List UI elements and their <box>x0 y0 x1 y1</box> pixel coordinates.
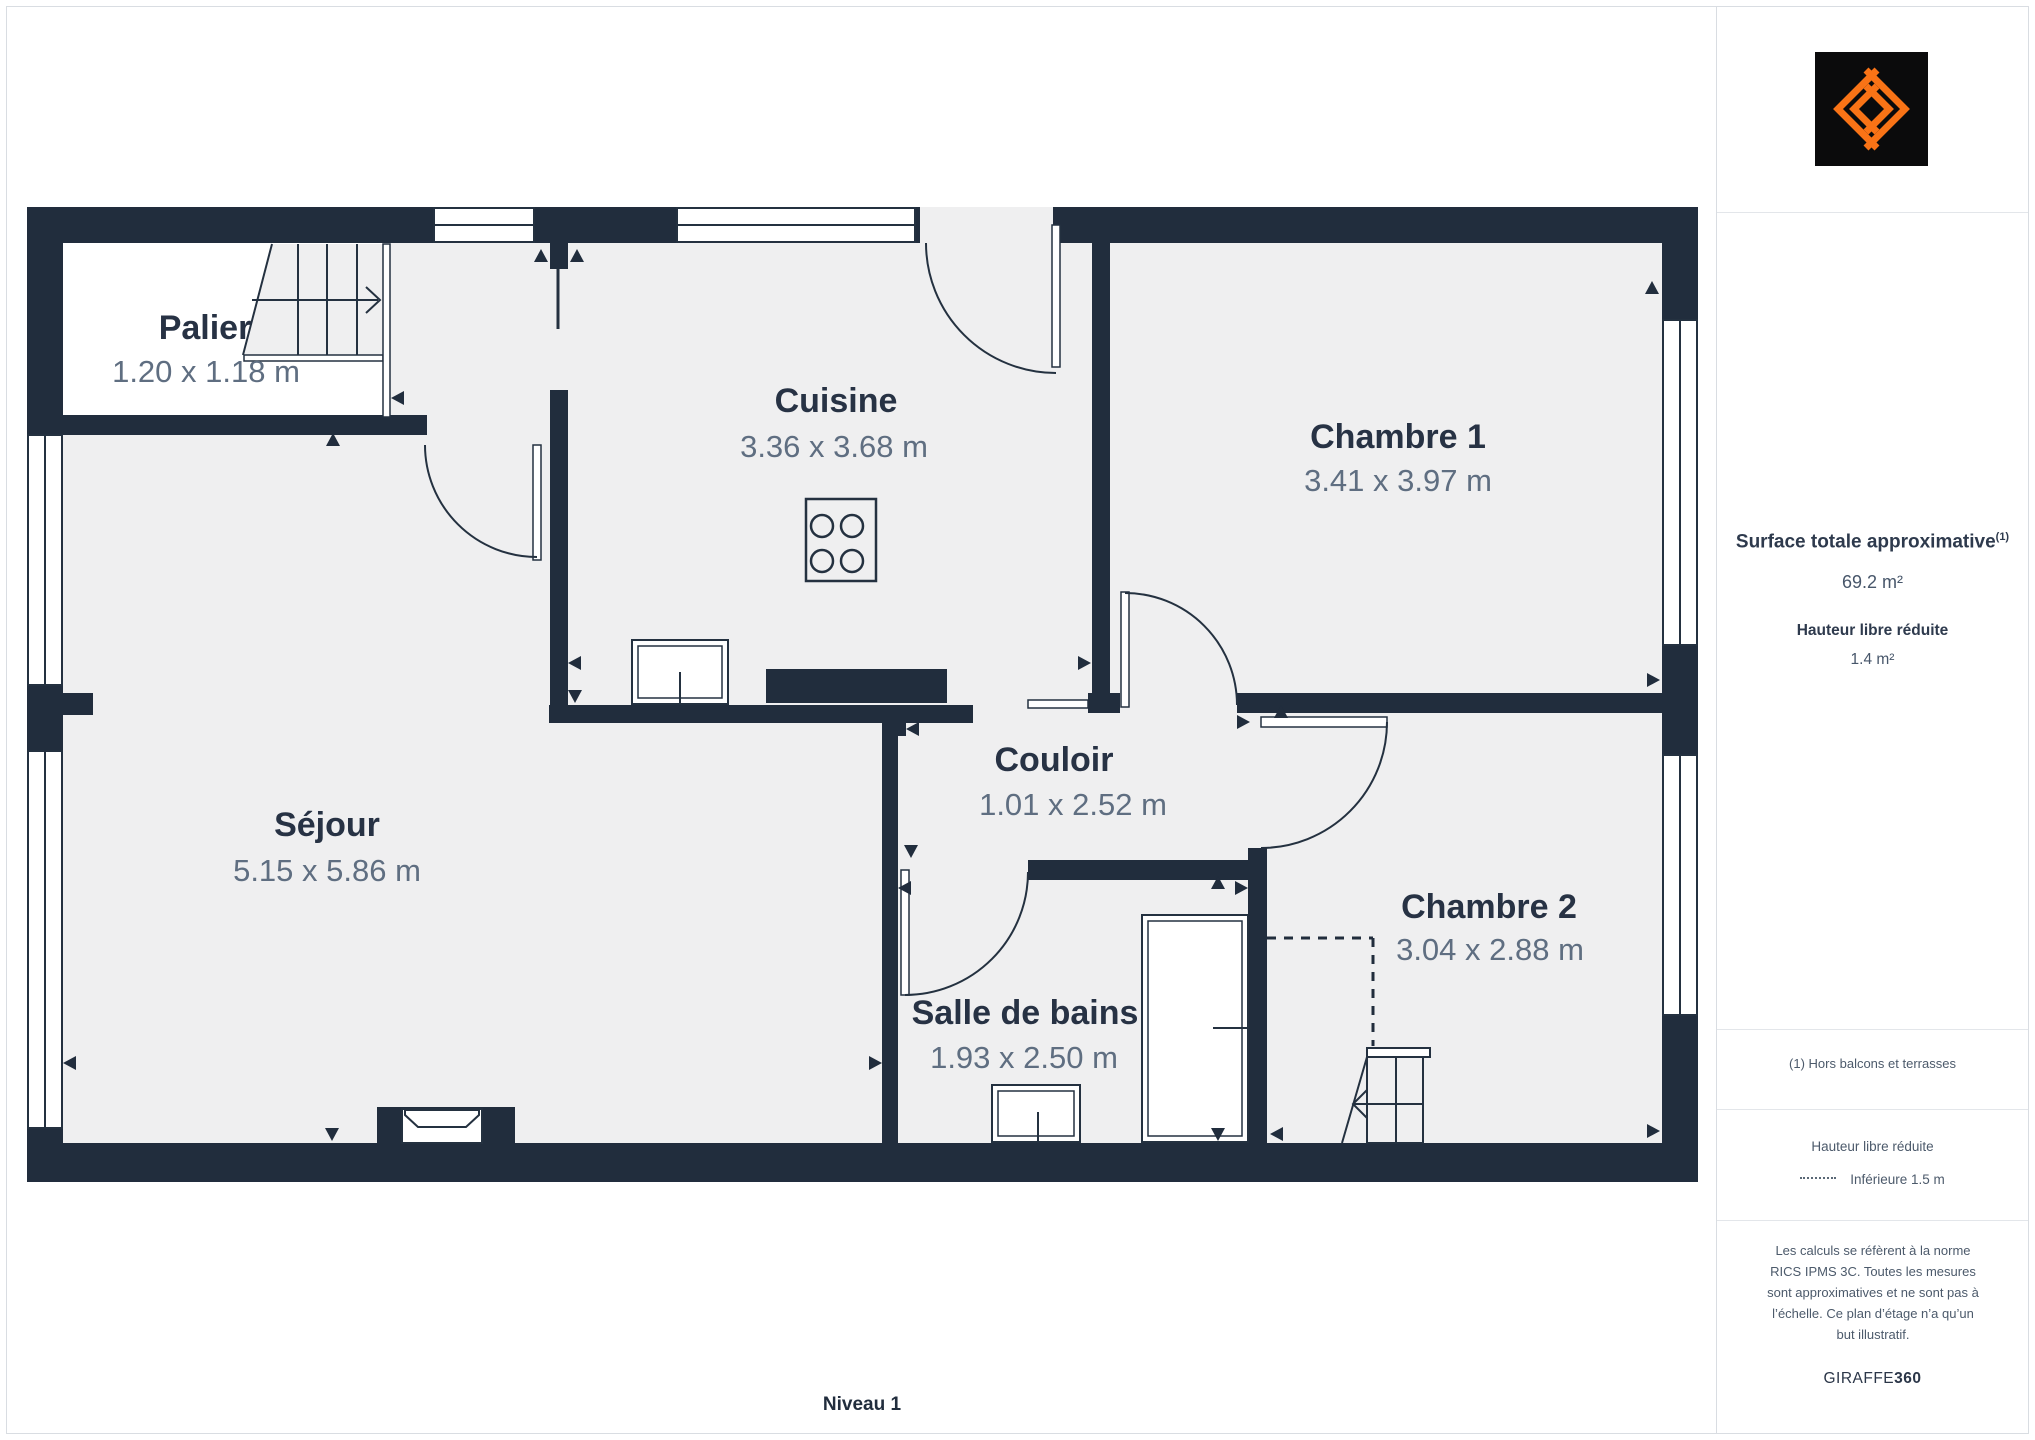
sidebar-section-divider <box>1717 1220 2029 1221</box>
disclaimer-text: Les calculs se réfèrent à la norme RICS … <box>1762 1240 1984 1345</box>
reduced-height-value: 1.4 m² <box>1717 651 2028 669</box>
brand-wordmark: GIRAFFE360 <box>1717 1370 2028 1388</box>
window-icon <box>1663 320 1697 645</box>
sink-icon <box>632 640 728 704</box>
room-dims: 3.41 x 3.97 m <box>1304 463 1492 498</box>
surface-total-superscript: (1) <box>1996 531 2009 543</box>
room-name: Séjour <box>274 806 380 844</box>
window-icon <box>677 208 915 242</box>
footnote: (1) Hors balcons et terrasses <box>1717 1056 2028 1071</box>
entry-niche-icon <box>402 1109 482 1143</box>
reduced-height-title: Hauteur libre réduite <box>1717 622 2028 640</box>
room-dims: 1.93 x 2.50 m <box>930 1040 1118 1075</box>
brand-regular: GIRAFFE <box>1823 1370 1894 1387</box>
room-name: Chambre 2 <box>1401 888 1577 926</box>
window-icon <box>28 435 62 685</box>
legend-row: Inférieure 1.5 m <box>1717 1172 2028 1187</box>
legend-title: Hauteur libre réduite <box>1717 1139 2028 1154</box>
window-icon <box>1663 755 1697 1015</box>
door-leaf-icon <box>1028 700 1088 708</box>
room-name: Couloir <box>995 741 1114 779</box>
brand-bold: 360 <box>1894 1370 1921 1387</box>
sidebar-divider <box>1716 6 1717 1433</box>
room-dims: 1.01 x 2.52 m <box>979 787 1167 822</box>
sidebar-section-divider <box>1717 212 2029 213</box>
room-name: Salle de bains <box>912 994 1139 1032</box>
window-icon <box>28 751 62 1128</box>
room-dims: 3.36 x 3.68 m <box>740 429 928 464</box>
surface-total-title-text: Surface totale approximative <box>1736 531 1996 552</box>
surface-total-value: 69.2 m² <box>1717 572 2028 593</box>
room-name: Cuisine <box>775 382 898 420</box>
room-dims: 1.20 x 1.18 m <box>112 354 300 389</box>
room-name: Palier <box>159 309 252 347</box>
surface-total-title: Surface totale approximative(1) <box>1717 531 2028 553</box>
giraffe360-logo-icon <box>1815 52 1928 166</box>
level-label: Niveau 1 <box>762 1394 962 1416</box>
shower-icon <box>1142 915 1248 1142</box>
sink-icon <box>992 1085 1080 1142</box>
sidebar-section-divider <box>1717 1029 2029 1030</box>
dotted-line-icon <box>1800 1177 1836 1179</box>
floorplan-page: Palier 1.20 x 1.18 m Cuisine 3.36 x 3.68… <box>0 0 2035 1440</box>
floorplan-drawing: Palier 1.20 x 1.18 m Cuisine 3.36 x 3.68… <box>0 0 2035 1440</box>
room-dims: 5.15 x 5.86 m <box>233 853 421 888</box>
legend-item-label: Inférieure 1.5 m <box>1850 1172 1945 1187</box>
room-name: Chambre 1 <box>1310 418 1486 456</box>
sidebar-section-divider <box>1717 1109 2029 1110</box>
window-icon <box>434 208 534 242</box>
room-dims: 3.04 x 2.88 m <box>1396 932 1584 967</box>
